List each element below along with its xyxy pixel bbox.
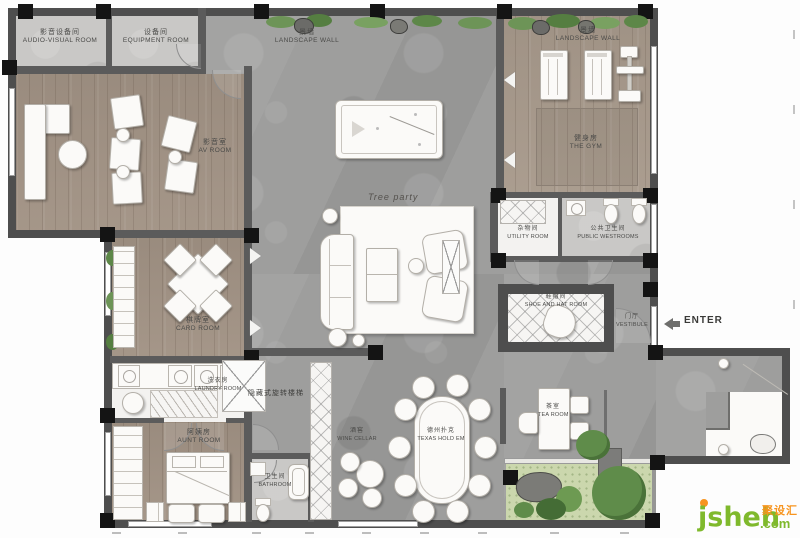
poker-chair bbox=[412, 376, 435, 399]
floor-lamp bbox=[328, 328, 347, 347]
wall-tea-stub bbox=[500, 388, 506, 444]
label-av-room: 影音室AV ROOM bbox=[180, 138, 250, 156]
window-right-gym bbox=[651, 46, 657, 174]
aunt-side-unit bbox=[146, 502, 164, 522]
av-lounge-chair bbox=[164, 158, 198, 194]
column bbox=[100, 227, 115, 242]
aunt-bed bbox=[166, 452, 230, 504]
poker-chair bbox=[474, 436, 497, 459]
label-bathroom: 卫生间BATHROOM bbox=[248, 474, 302, 489]
wine-table bbox=[356, 460, 384, 488]
av-desk-chair bbox=[58, 140, 87, 169]
folding-door-icon bbox=[504, 152, 515, 168]
label-equipment-room: 设备间EQUIPMENT ROOM bbox=[112, 28, 200, 46]
tv-console bbox=[442, 240, 460, 294]
folding-door-icon bbox=[250, 248, 261, 264]
label-hidden-stair: 隐藏式旋转楼梯 bbox=[248, 388, 304, 398]
staircase bbox=[706, 392, 782, 456]
av-side-table bbox=[116, 128, 130, 142]
label-landscape-wall-gym: 景墙LANDSCAPE WALL bbox=[538, 26, 638, 44]
aunt-wardrobe bbox=[113, 426, 143, 520]
window-right-restroom bbox=[651, 204, 657, 256]
column bbox=[650, 455, 665, 470]
column bbox=[491, 253, 506, 268]
dimension-tick bbox=[550, 532, 559, 534]
garden-bush bbox=[536, 498, 566, 520]
dimension-tick bbox=[178, 532, 187, 534]
wall-garden-planter bbox=[504, 458, 654, 464]
watermark-suffix: .com bbox=[760, 516, 790, 531]
tea-area-tree bbox=[576, 430, 610, 460]
poker-chair bbox=[394, 398, 417, 421]
window-left-aunt bbox=[105, 432, 111, 496]
column bbox=[643, 253, 658, 268]
wine-stool bbox=[338, 478, 358, 498]
tea-chair bbox=[518, 412, 538, 434]
laundry-sink bbox=[118, 365, 140, 387]
label-laundry-room: 洗衣房LAUNDRY ROOM bbox=[182, 378, 254, 393]
side-table bbox=[408, 258, 424, 274]
label-public-restrooms: 公共卫生间PUBLIC WESTROOMS bbox=[566, 226, 650, 241]
poker-chair bbox=[468, 398, 491, 421]
window-bottom-hall bbox=[338, 521, 418, 527]
column bbox=[2, 60, 17, 75]
side-table bbox=[352, 334, 365, 347]
column bbox=[244, 228, 259, 243]
label-texas-holdem: 德州扑克TEXAS HOLD EM bbox=[406, 428, 476, 443]
label-card-room: 棋牌室CARD ROOM bbox=[158, 316, 238, 334]
dimension-tick bbox=[478, 532, 487, 534]
label-enter: ENTER bbox=[684, 315, 723, 326]
treadmill bbox=[584, 50, 612, 100]
wall-av-card bbox=[104, 230, 252, 238]
wall-laundry-aunt2 bbox=[226, 418, 252, 423]
card-room-cabinet bbox=[113, 246, 135, 348]
tea-table bbox=[538, 388, 570, 450]
laundry-basket bbox=[122, 392, 144, 414]
dimension-tick bbox=[362, 532, 371, 534]
toilet-icon bbox=[630, 198, 646, 224]
poker-table bbox=[414, 396, 470, 504]
wine-stool bbox=[340, 452, 360, 472]
floor-plan: 影音设备间AUDIO-VISUAL ROOM 设备间EQUIPMENT ROOM… bbox=[0, 0, 800, 538]
column bbox=[18, 4, 33, 19]
wall-laundry-aunt bbox=[110, 418, 164, 423]
dimension-tick bbox=[305, 532, 314, 534]
wall-step bbox=[8, 230, 110, 238]
column bbox=[645, 513, 660, 528]
label-wine-cellar: 酒窖WINE CELLAR bbox=[330, 428, 384, 443]
dimension-tick bbox=[793, 200, 795, 209]
poker-chair bbox=[394, 474, 417, 497]
enter-arrow-icon bbox=[664, 318, 680, 330]
window-left-av bbox=[9, 88, 15, 176]
tea-chair bbox=[570, 396, 589, 414]
aunt-side-unit bbox=[228, 502, 246, 522]
column bbox=[368, 345, 383, 360]
garden-bush bbox=[514, 502, 534, 518]
folding-door-icon bbox=[504, 72, 515, 88]
weight-station bbox=[616, 46, 642, 102]
dimension-tick bbox=[620, 532, 629, 534]
wall-gym-left bbox=[496, 16, 504, 196]
coffee-table bbox=[366, 248, 398, 302]
wall-stair-top bbox=[652, 348, 790, 356]
column bbox=[648, 345, 663, 360]
dimension-tick bbox=[112, 532, 121, 534]
av-desk-return bbox=[24, 104, 46, 200]
billiard-rack-icon bbox=[352, 121, 365, 137]
poker-chair bbox=[446, 374, 469, 397]
utility-shelf bbox=[500, 200, 546, 224]
label-tree-party: Tree party bbox=[368, 192, 418, 202]
drying-rack bbox=[150, 390, 218, 418]
toilet-icon bbox=[602, 198, 618, 224]
aunt-bench-chair bbox=[168, 504, 195, 523]
watermark-logo: jsheh 聚设汇 .com bbox=[676, 498, 800, 538]
billiard-table bbox=[335, 100, 443, 159]
wall-stair-bottom bbox=[652, 456, 790, 464]
treadmill bbox=[540, 50, 568, 100]
restroom-sink bbox=[566, 200, 586, 216]
label-audio-visual-room: 影音设备间AUDIO-VISUAL ROOM bbox=[14, 28, 106, 46]
dimension-tick bbox=[793, 300, 795, 309]
dimension-tick bbox=[252, 532, 261, 534]
poker-chair bbox=[468, 474, 491, 497]
label-vestibule: 门厅VESTIBULE bbox=[608, 314, 656, 329]
label-aunt-room: 阿姨房AUNT ROOM bbox=[164, 428, 234, 446]
column bbox=[96, 4, 111, 19]
poker-chair bbox=[412, 500, 435, 523]
label-shoe-hat-room: 鞋帽间SHOE AND HAT ROOM bbox=[510, 294, 602, 309]
folding-door-icon bbox=[250, 320, 261, 336]
label-landscape-wall-top: 景墙LANDSCAPE WALL bbox=[262, 28, 352, 46]
wall-stair-right bbox=[782, 348, 790, 464]
stair-post bbox=[718, 358, 729, 369]
lounge-sofa bbox=[320, 234, 354, 330]
wine-rack bbox=[310, 362, 332, 520]
aunt-bench-chair bbox=[198, 504, 225, 523]
toilet-icon bbox=[254, 498, 270, 522]
wine-stool bbox=[362, 488, 382, 508]
dimension-tick bbox=[420, 532, 429, 534]
floor-lamp bbox=[322, 208, 338, 224]
poker-chair bbox=[446, 500, 469, 523]
wall-winearea-top bbox=[248, 348, 376, 356]
column bbox=[100, 408, 115, 423]
wall-utility-divider bbox=[558, 198, 562, 256]
garden-tree bbox=[592, 466, 646, 520]
av-side-table bbox=[116, 165, 130, 179]
dimension-tick bbox=[793, 30, 795, 39]
av-lounge-chair bbox=[110, 94, 144, 130]
wall-bathroom-top bbox=[246, 453, 314, 459]
label-gym: 健身房THE GYM bbox=[536, 134, 636, 152]
dimension-tick bbox=[793, 105, 795, 114]
label-utility-room: 杂物间UTILITY ROOM bbox=[498, 226, 558, 241]
label-tea-room: 茶室TEA ROOM bbox=[538, 404, 568, 419]
column bbox=[643, 282, 658, 297]
stair-post bbox=[718, 444, 729, 455]
